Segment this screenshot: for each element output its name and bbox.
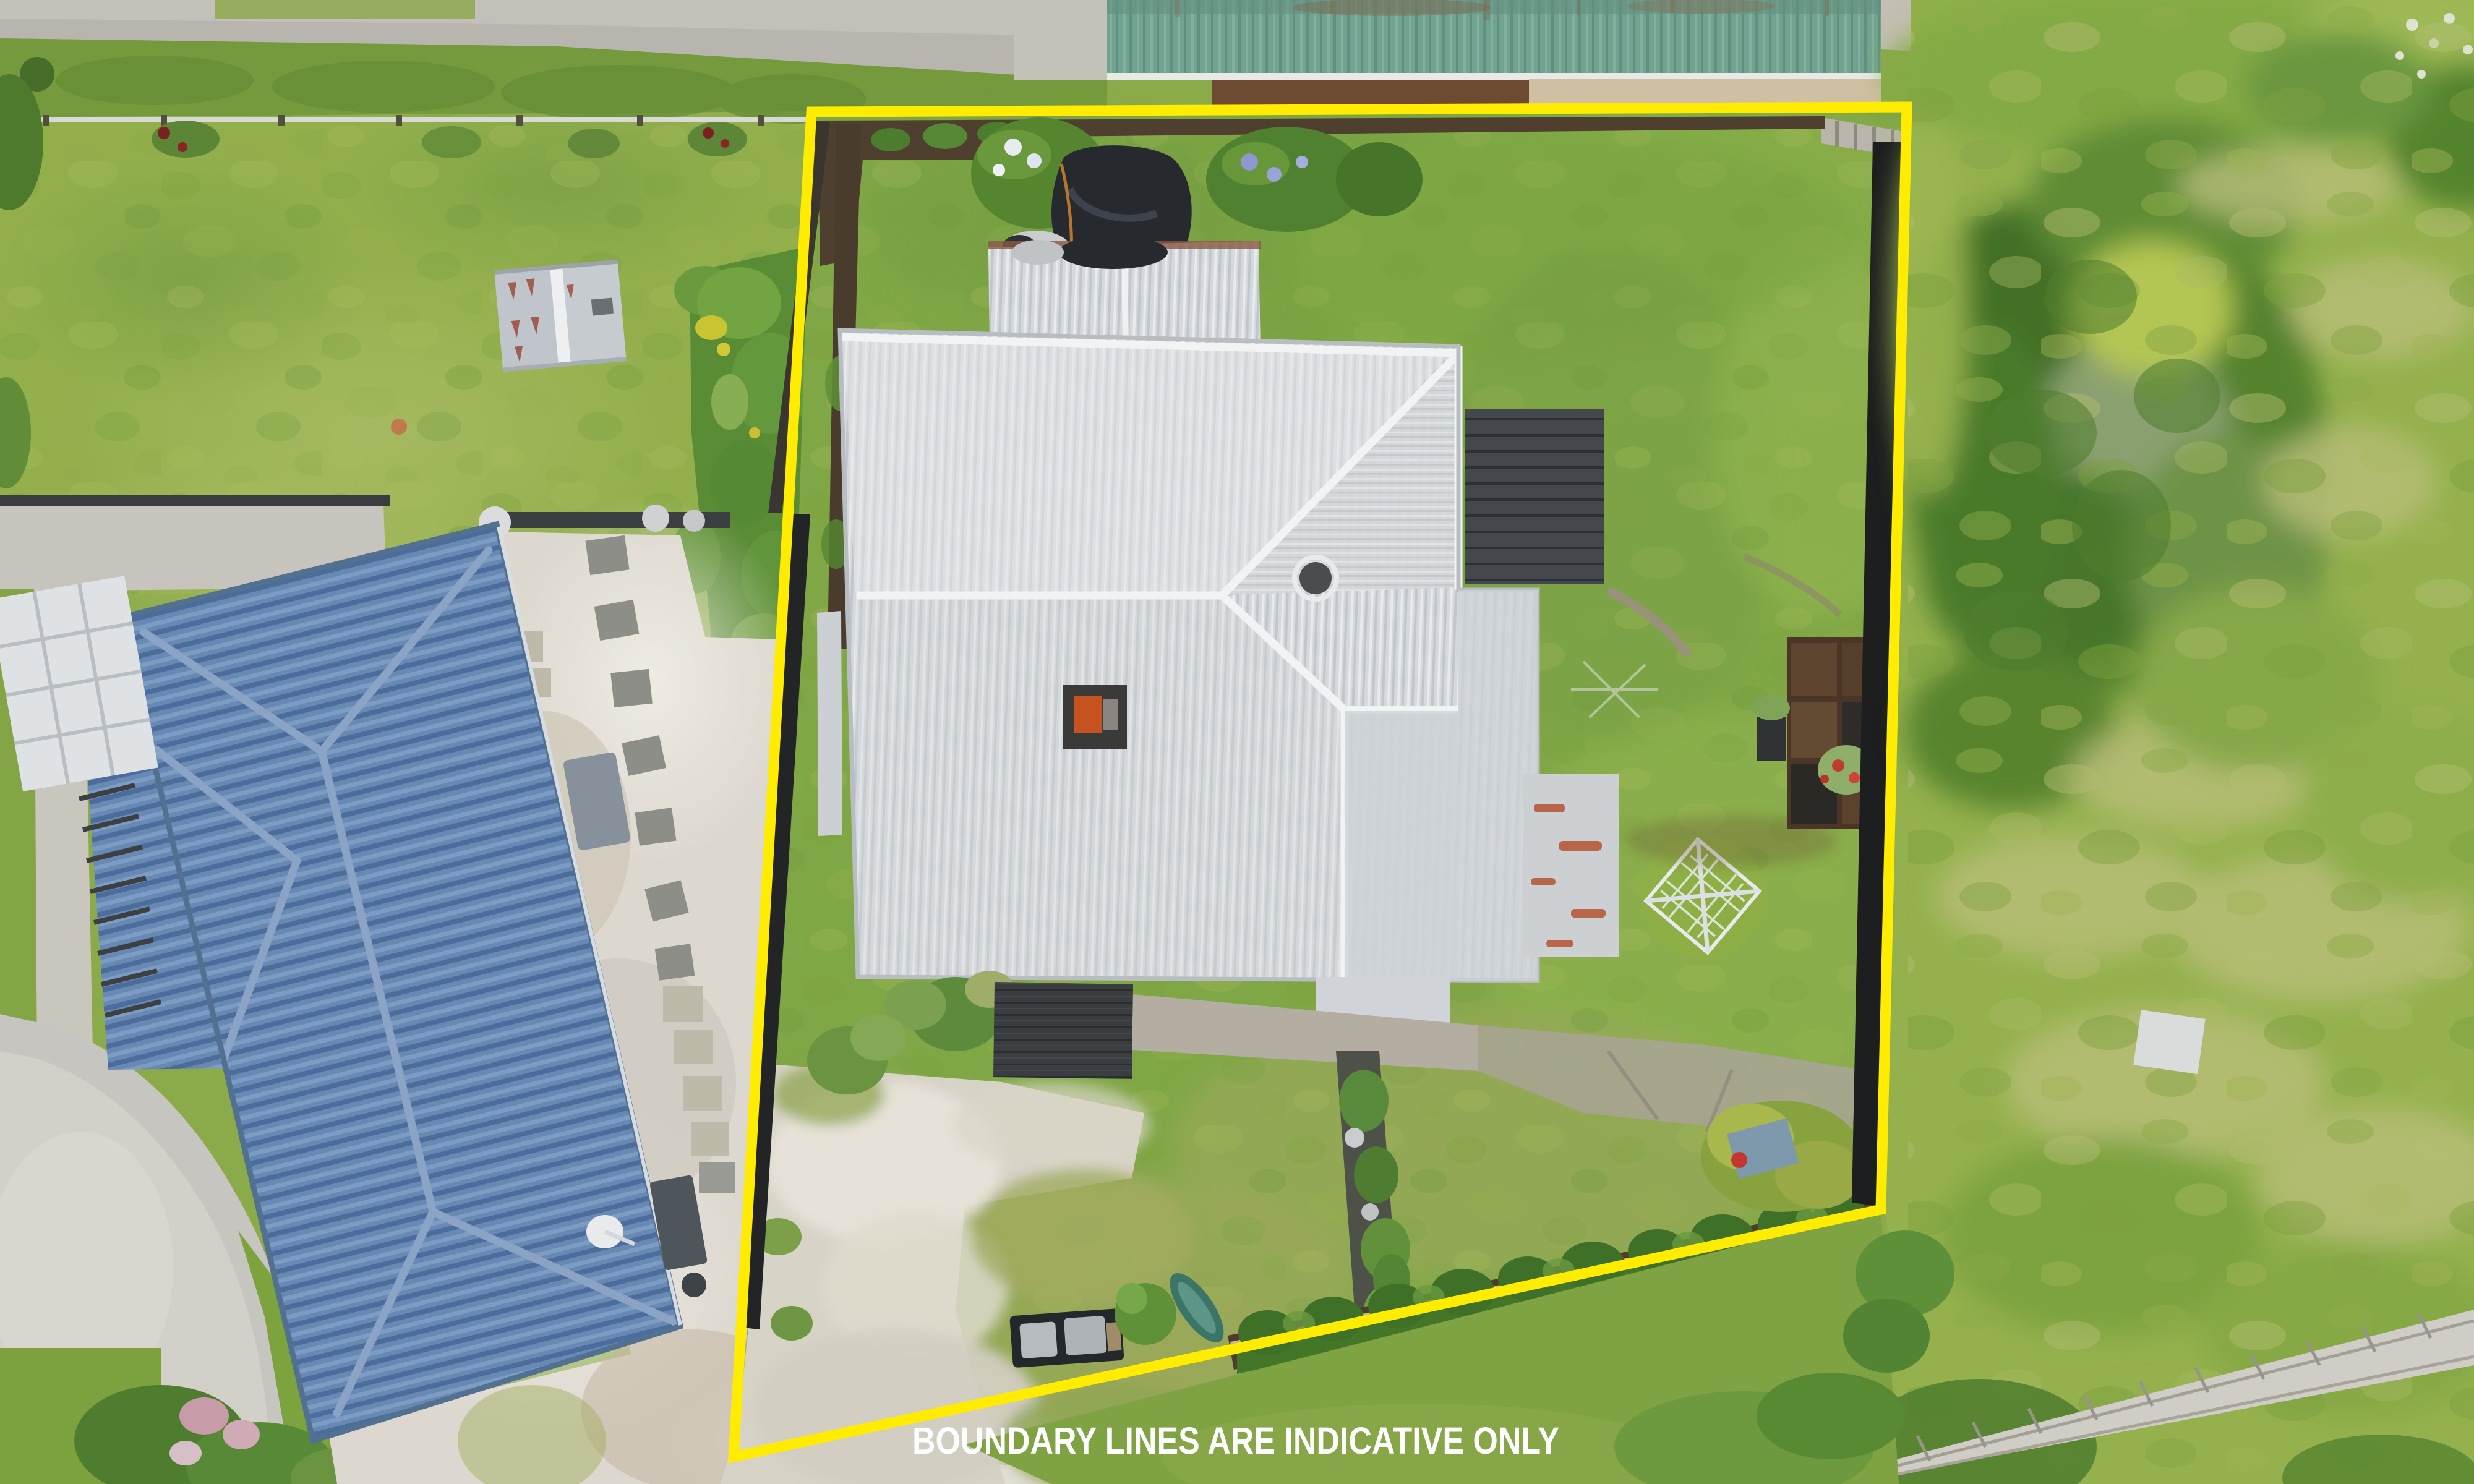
svg-text:BOUNDARY LINES ARE INDICATIVE: BOUNDARY LINES ARE INDICATIVE ONLY — [912, 1420, 1559, 1462]
